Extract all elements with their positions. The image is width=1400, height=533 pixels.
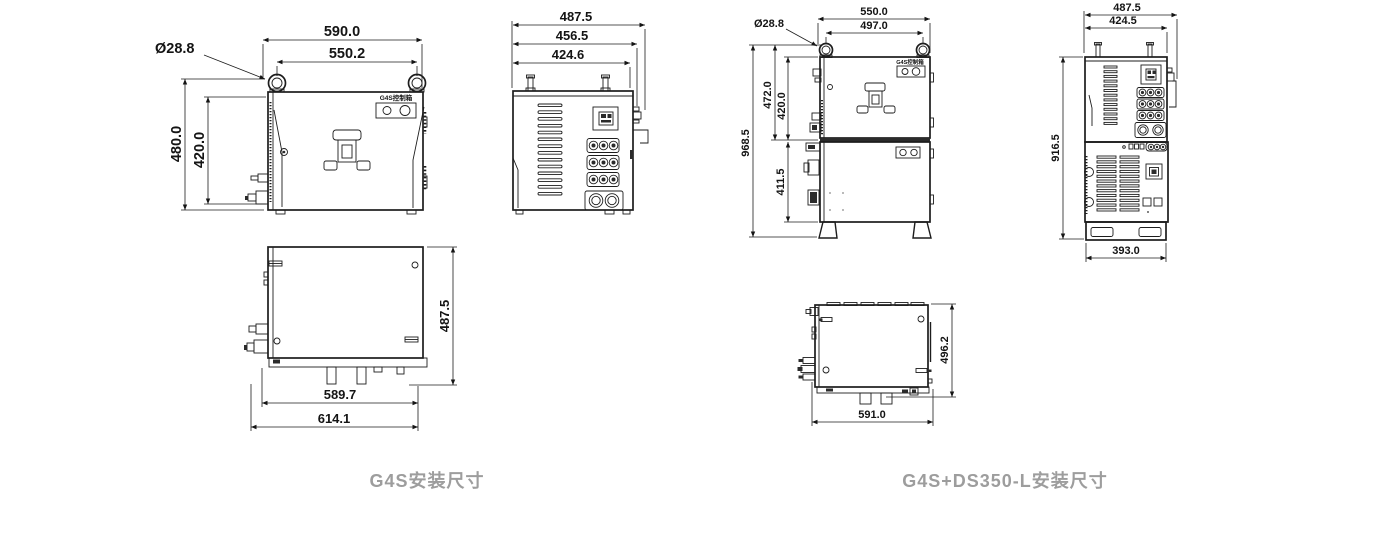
dim-487-5: 487.5: [1113, 2, 1141, 14]
foot-left: [819, 222, 837, 238]
g4s-top-view: 487.5 589.7 614.1: [244, 247, 457, 431]
vent-louvers-upper: [1104, 66, 1117, 124]
connector-plate-upper: [897, 66, 925, 77]
dim-487-5-top: 487.5: [437, 300, 452, 333]
g4s-side-view: 487.5 456.5 424.6: [512, 9, 648, 214]
g4s-front-view: G4S控制箱 590.0 550.2 Ø28.8 480.0: [155, 24, 427, 214]
dim-424-5: 424.5: [1109, 15, 1137, 27]
ds350-top-view: 496.2 591.0: [798, 303, 957, 427]
rear-cable-gland: [1167, 68, 1176, 107]
dim-550: 550.2: [329, 46, 365, 62]
eyebolt-right: [409, 75, 426, 93]
lower-left-connectors: [804, 143, 820, 205]
eyebolt-left: [269, 75, 286, 93]
dim-393-0: 393.0: [1112, 245, 1140, 257]
dim-420: 420.0: [192, 132, 208, 168]
dim-424-6: 424.6: [552, 47, 585, 62]
power-sockets: [1135, 123, 1166, 138]
lower-unit-top-strip: [1123, 143, 1167, 152]
connector-row-1: [587, 139, 619, 153]
dim-589-7: 589.7: [324, 387, 357, 402]
eyebolt-left: [820, 44, 833, 58]
power-switch-panel: [593, 107, 618, 130]
ds350-panel-label: G4S控制箱: [896, 58, 924, 66]
ds350-side-view: 487.5 424.5 916.5 393.0: [1050, 2, 1177, 262]
side-connectors: [245, 174, 268, 204]
square-connector: [1146, 164, 1162, 179]
dim-614-1: 614.1: [318, 411, 351, 426]
vent-louvers-lower: [1097, 156, 1139, 211]
drawing-canvas: G4S控制箱 590.0 550.2 Ø28.8 480.0: [0, 0, 1400, 533]
foot-right: [913, 222, 931, 238]
connector-rows: [1137, 88, 1164, 121]
dim-480: 480.0: [169, 126, 185, 162]
dim-eyebolt-dia: Ø28.8: [155, 41, 195, 57]
ds350-front-view: G4S控制箱 550.0: [740, 6, 934, 238]
vent-louvers: [538, 104, 562, 195]
dim-472-0: 472.0: [762, 81, 774, 109]
lifting-bolts: [1095, 43, 1154, 58]
dim-496-2: 496.2: [939, 336, 951, 364]
dim-487-5-side: 487.5: [560, 9, 593, 24]
side-connectors-top: [244, 324, 268, 353]
dim-550-0: 550.0: [860, 6, 888, 18]
dim-968-5: 968.5: [740, 129, 752, 157]
dim-eyebolt-dia: Ø28.8: [754, 18, 784, 30]
handle: [857, 83, 895, 113]
eyebolt-right: [917, 44, 930, 58]
dim-497-0: 497.0: [860, 20, 888, 32]
connector-row-3: [587, 173, 619, 187]
caption-g4s-ds350: G4S+DS350-L安装尺寸: [855, 467, 1155, 493]
power-switch-panel: [1141, 65, 1161, 84]
rear-cable-gland: [633, 107, 648, 143]
caption-g4s: G4S安装尺寸: [277, 467, 577, 493]
dim-590: 590.0: [324, 24, 360, 40]
installation-dimensions-sheet: G4S控制箱 590.0 550.2 Ø28.8 480.0: [0, 0, 1400, 533]
lifting-bolts: [526, 75, 610, 91]
dim-916-5: 916.5: [1050, 134, 1062, 162]
dim-411-5: 411.5: [775, 169, 787, 196]
handle: [324, 130, 370, 170]
dim-591-0: 591.0: [858, 409, 886, 421]
dim-420-0: 420.0: [776, 92, 788, 120]
power-sockets: [585, 191, 623, 210]
dim-456-5: 456.5: [556, 28, 589, 43]
connector-row-2: [587, 156, 619, 170]
g4s-panel-label: G4S控制箱: [380, 93, 413, 102]
